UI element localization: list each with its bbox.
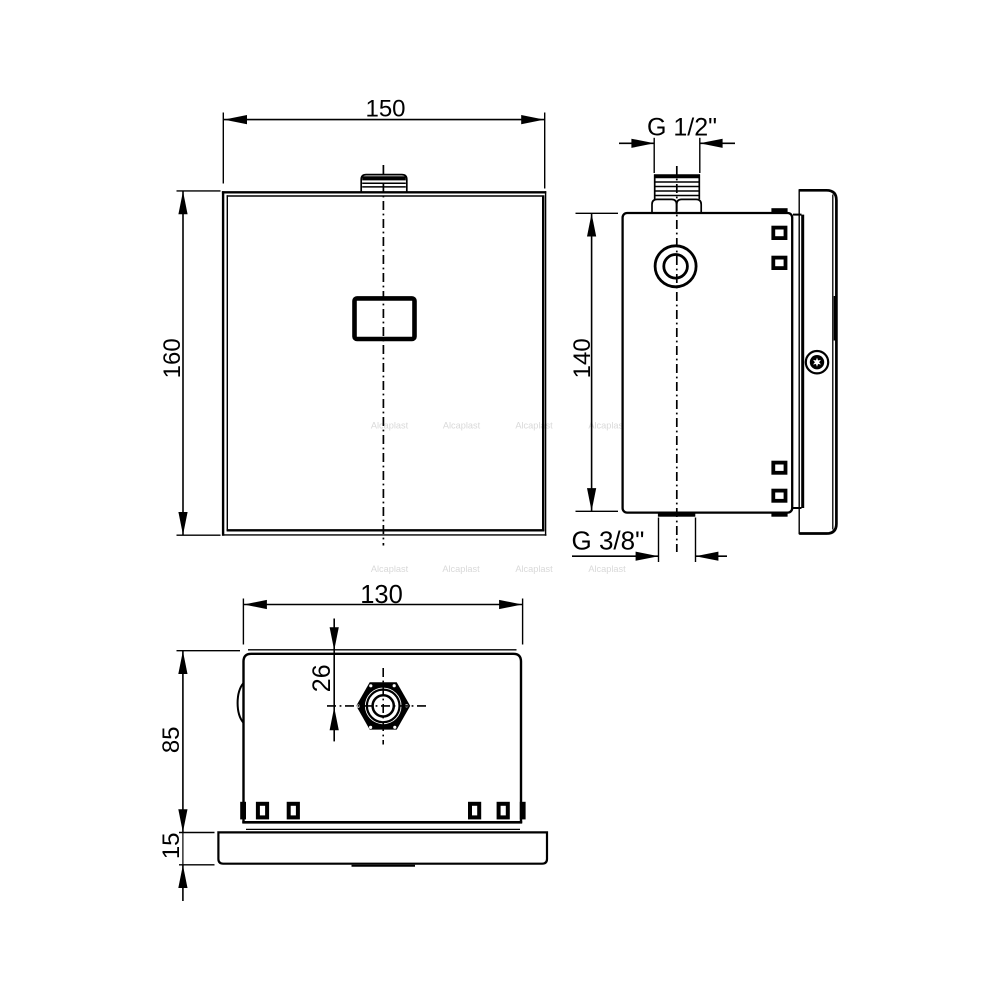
svg-text:Alcaplast: Alcaplast xyxy=(588,421,626,431)
svg-text:G 1/2": G 1/2" xyxy=(647,113,717,141)
svg-text:Alcaplast: Alcaplast xyxy=(442,564,480,574)
svg-text:160: 160 xyxy=(159,338,186,378)
svg-text:Alcaplast: Alcaplast xyxy=(515,421,553,431)
svg-text:150: 150 xyxy=(365,96,405,123)
svg-text:Alcaplast: Alcaplast xyxy=(515,564,553,574)
svg-text:G 3/8": G 3/8" xyxy=(572,526,645,556)
svg-text:15: 15 xyxy=(158,832,185,859)
svg-text:Alcaplast: Alcaplast xyxy=(371,421,409,431)
svg-text:85: 85 xyxy=(158,726,185,753)
svg-text:Alcaplast: Alcaplast xyxy=(371,564,409,574)
svg-text:Alcaplast: Alcaplast xyxy=(443,421,481,431)
svg-text:Alcaplast: Alcaplast xyxy=(588,564,626,574)
svg-text:26: 26 xyxy=(308,664,336,692)
